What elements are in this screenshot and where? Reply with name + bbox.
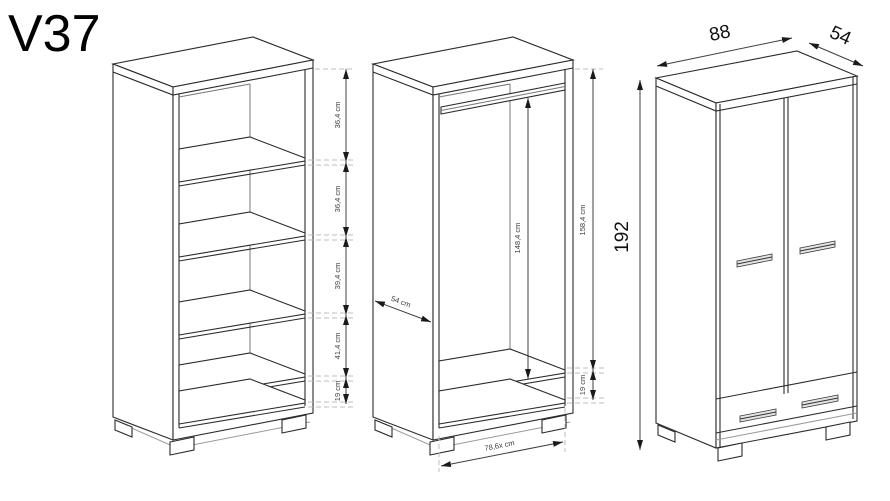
furniture-dimension-sheet: V37 — [0, 0, 890, 501]
cabinet-shell — [656, 51, 857, 448]
shelf-gap-1-label: 36,4 cm — [333, 102, 342, 129]
wardrobe-front-view: 192 88 54 — [612, 21, 863, 461]
interior-height-label: 158,4 cm — [578, 205, 587, 236]
shelf-unit-view: 36,4 cm 36,4 cm 39,4 cm 41,4 cm 19 cm — [113, 37, 354, 455]
width-label: 88 — [707, 21, 732, 46]
shelf-gap-2-label: 36,4 cm — [333, 186, 342, 213]
shelf-gap-4-label: 41,4 cm — [333, 333, 342, 360]
height-label: 192 — [612, 221, 633, 253]
technical-drawing: V37 — [0, 0, 890, 501]
wardrobe-interior-view: 148,4 cm 158,4 cm 19 cm 54 cm 78,6x cm — [373, 37, 606, 472]
depth-label: 54 — [826, 22, 854, 50]
model-title: V37 — [8, 5, 101, 63]
shelf-gap-3-label: 39,4 cm — [333, 263, 342, 290]
rail-height-label: 148,4 cm — [513, 223, 522, 254]
bottom-gap-label: 19 cm — [578, 375, 587, 395]
interior-width-label: 78,6x cm — [484, 438, 516, 453]
shelf-gap-5-label: 19 cm — [333, 381, 342, 401]
shelf-dimension-lines: 36,4 cm 36,4 cm 39,4 cm 41,4 cm 19 cm — [308, 69, 354, 407]
